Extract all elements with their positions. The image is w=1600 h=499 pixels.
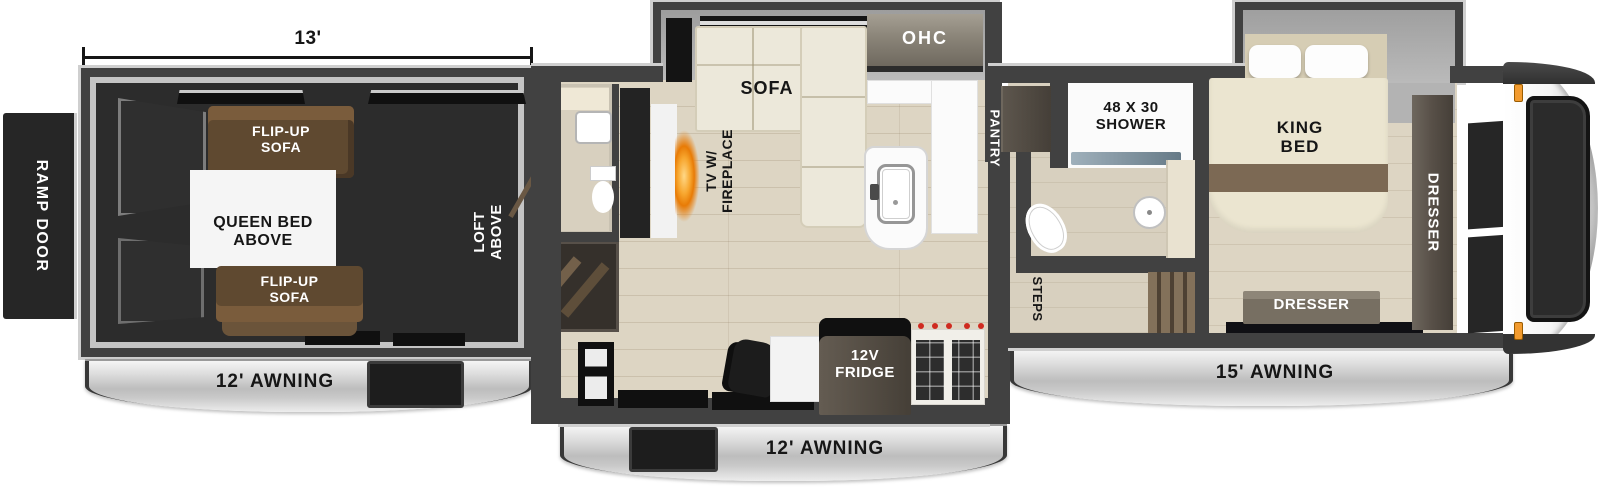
pillow [1249, 45, 1301, 78]
kitchen-counter [931, 80, 978, 234]
flip-up-sofa-bottom-seat [222, 322, 357, 336]
front-cap-window [1526, 96, 1590, 322]
bedroom-bottom-wall [1008, 333, 1512, 348]
living-awning-label: 12' AWNING [640, 438, 1010, 459]
garage-window [393, 333, 465, 346]
living-window-sill [618, 390, 708, 408]
rv-floorplan: 13' RAMP DOOR FLIP-UP SOFA QUEEN BED ABO… [0, 0, 1600, 499]
marker-light [1514, 322, 1523, 340]
marker-light [1514, 84, 1523, 102]
dimension-tick-right [530, 47, 533, 65]
bathroom-sink-drain [1147, 210, 1152, 215]
tv-fireplace-label: TV W/ FIREPLACE [704, 112, 742, 230]
sofa-label: SOFA [712, 78, 822, 98]
garage-window [368, 90, 526, 104]
shower-glass [1071, 152, 1181, 165]
sink-drain [893, 200, 898, 205]
dishwasher [770, 336, 822, 402]
front-window [1468, 121, 1507, 230]
mid-right-wall [988, 150, 1010, 424]
dresser-side-label: DRESSER [1424, 158, 1441, 268]
dimension-label: 13' [268, 28, 348, 49]
half-bath-toilet [592, 181, 614, 213]
dimension-tick-left [82, 47, 85, 65]
slide-side-window [666, 18, 692, 82]
queen-bed-above-label: QUEEN BED ABOVE [190, 214, 336, 250]
mid-left-wall [531, 64, 561, 424]
fridge-label: 12V FRIDGE [819, 348, 911, 382]
flip-up-sofa-top-label: FLIP-UP SOFA [208, 124, 354, 155]
mid-top-wall [531, 66, 663, 82]
steps [1148, 272, 1195, 333]
bedroom-awning-label: 15' AWNING [1070, 362, 1480, 383]
king-bed-runner [1209, 164, 1388, 192]
stove-grate [916, 340, 980, 400]
half-bath-sink [575, 111, 612, 144]
bath-bedroom-wall [1193, 83, 1209, 333]
shower-wall [1050, 83, 1068, 168]
garage-awning-label: 12' AWNING [130, 371, 420, 392]
steps-label: STEPS [1028, 268, 1044, 330]
bath-top-wall [988, 66, 1245, 83]
ohc-label: OHC [867, 28, 983, 48]
fireplace-flame [675, 130, 701, 222]
tv-wall [620, 88, 650, 238]
pantry-label: PANTRY [985, 99, 1002, 179]
flip-up-sofa-bottom-label: FLIP-UP SOFA [216, 274, 363, 305]
stove-knob [918, 323, 924, 329]
sink-faucet [870, 184, 879, 200]
front-cap-roof-top [1503, 62, 1595, 84]
half-bath-closet-wall [542, 232, 619, 242]
sofa-chaise [800, 26, 867, 228]
half-bath-counter [556, 88, 609, 110]
pillow [1305, 45, 1368, 78]
shower-label: 48 X 30 SHOWER [1068, 100, 1194, 134]
tv-panel [651, 104, 677, 238]
bathroom-vanity [1166, 160, 1195, 258]
dimension-line [83, 56, 533, 59]
kitchen-sink [877, 164, 915, 224]
ramp-door-label: RAMP DOOR [30, 126, 50, 306]
garage-window [177, 90, 305, 104]
king-bed-label: KING BED [1230, 118, 1370, 156]
pantry-cabinet [1001, 86, 1051, 152]
half-bath-toilet-tank [590, 166, 616, 181]
loft-above-label: LOFT ABOVE [472, 187, 512, 277]
front-window [1468, 235, 1507, 334]
dresser-foot-label: DRESSER [1243, 297, 1380, 314]
living-window [578, 342, 614, 406]
